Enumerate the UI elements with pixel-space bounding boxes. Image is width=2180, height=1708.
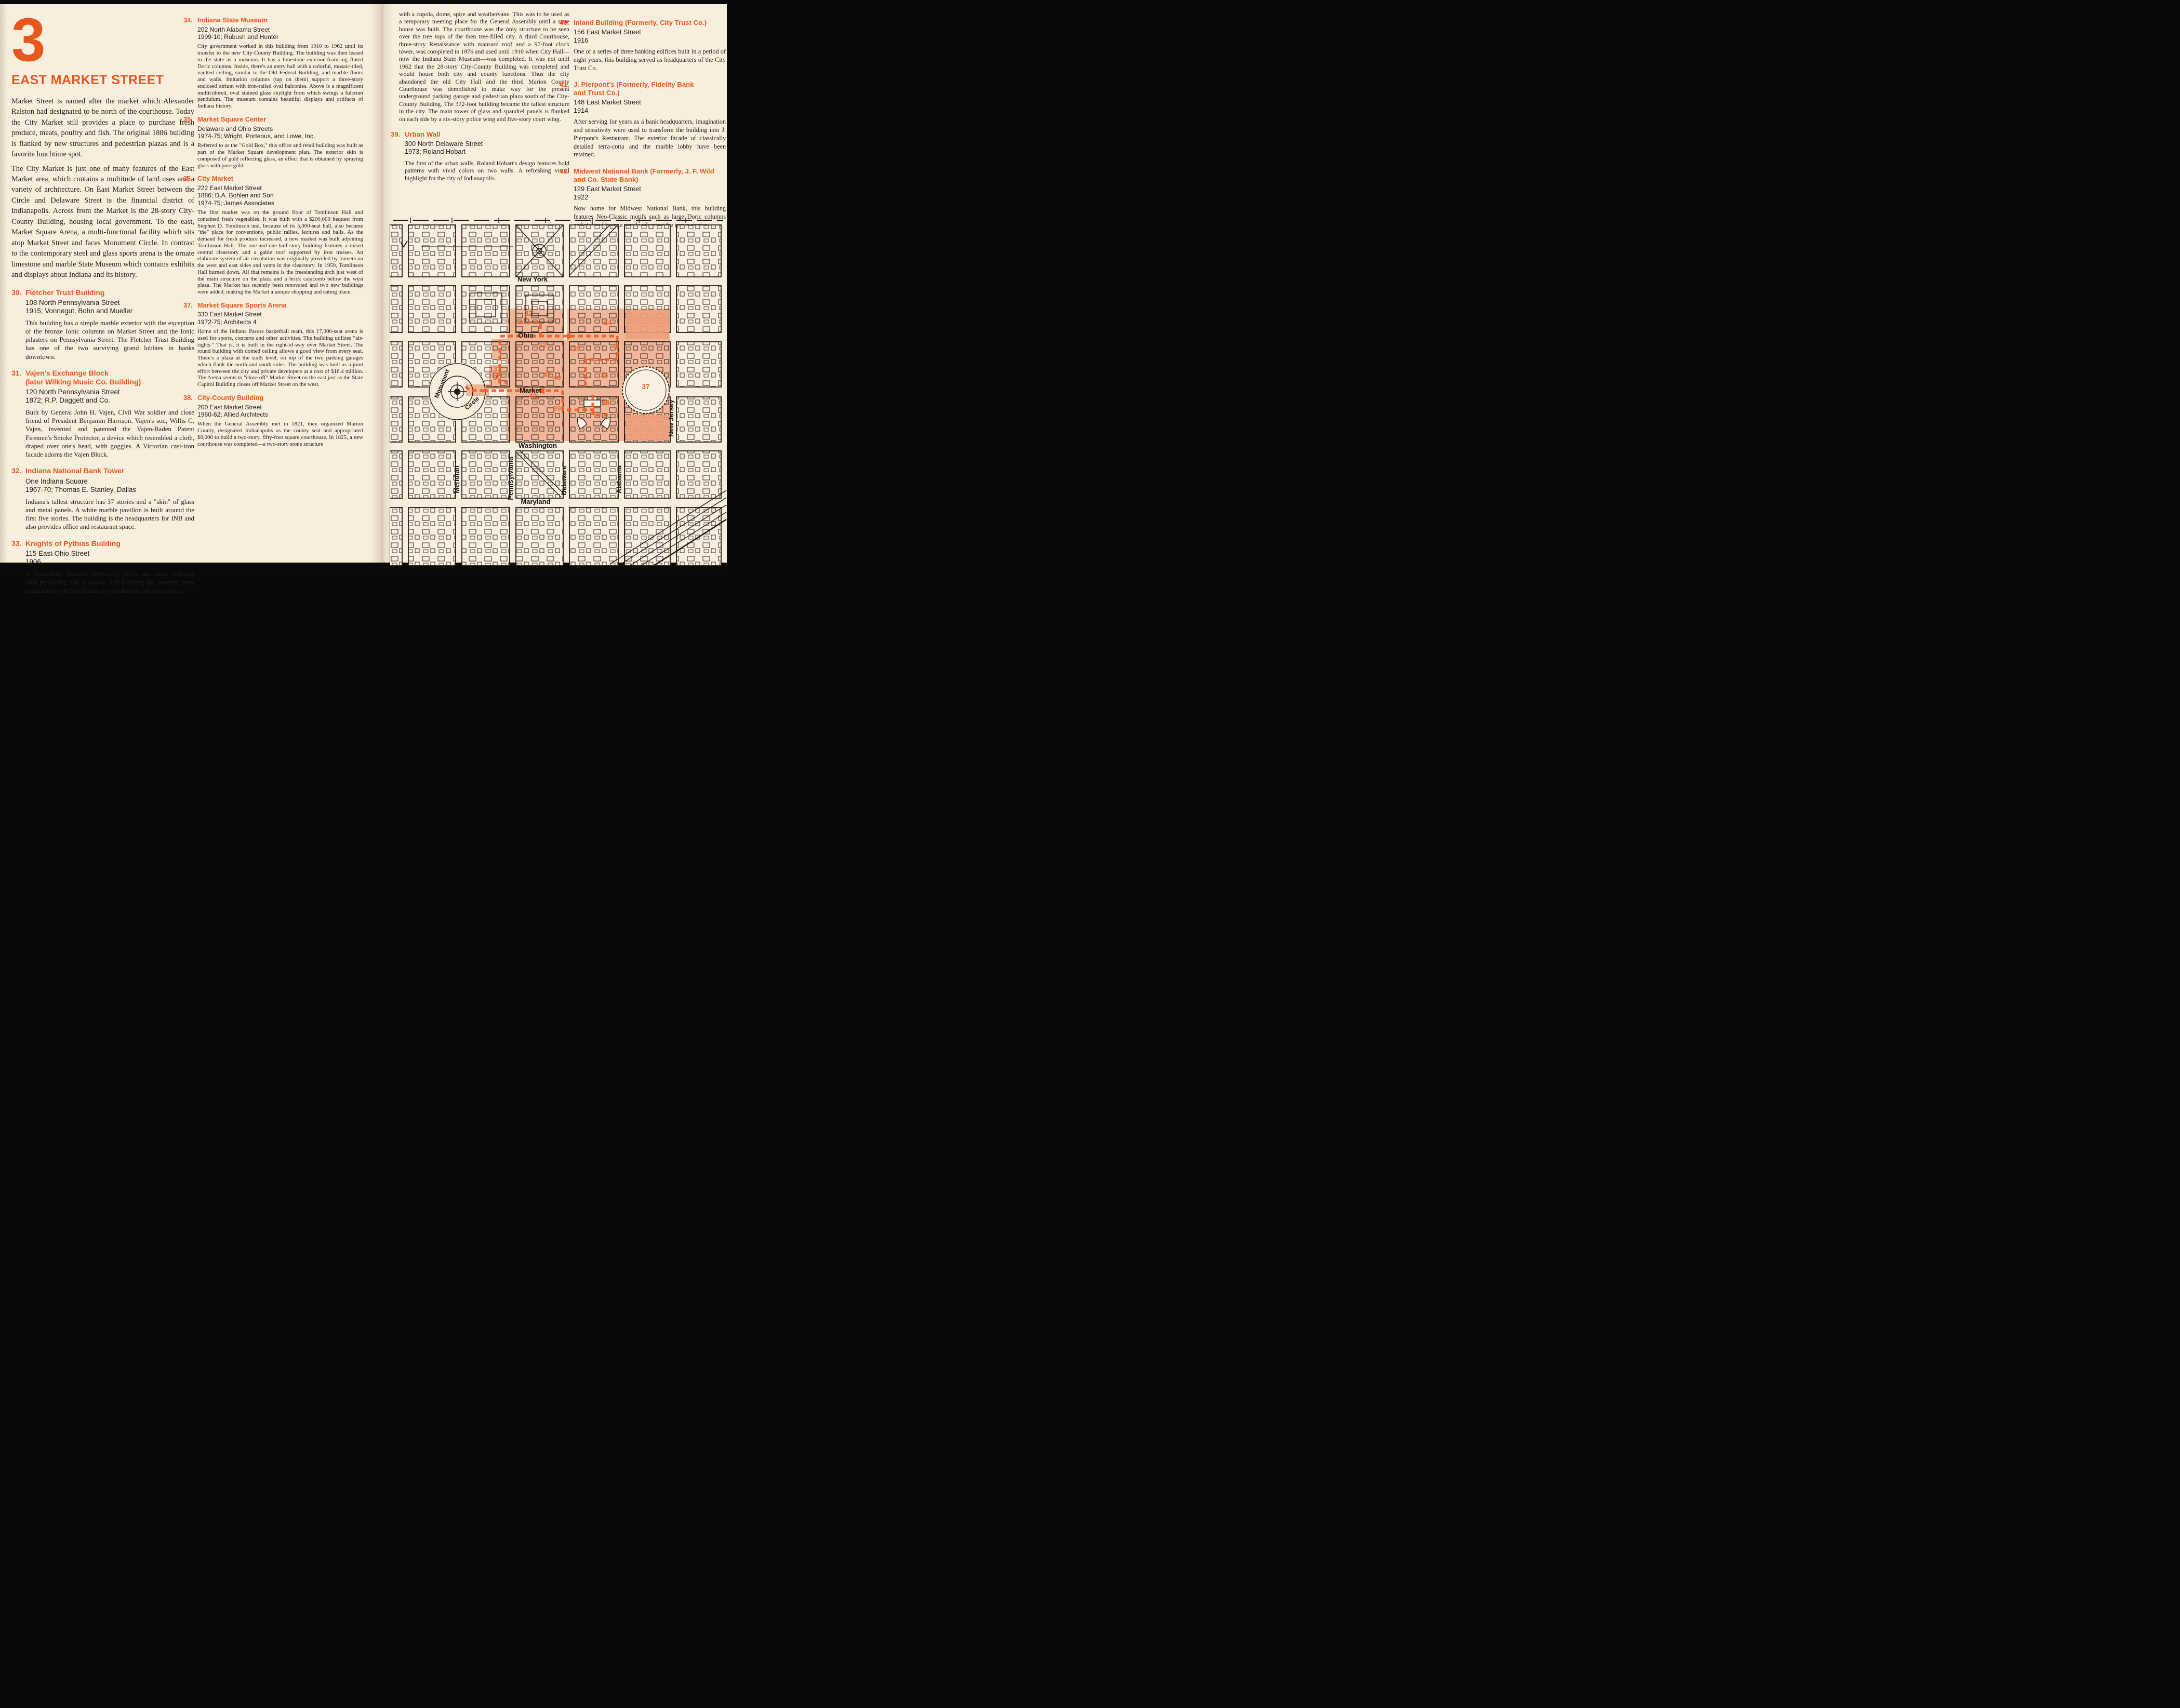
building-entry: 37. Market Square Sports Arena 330 East … xyxy=(183,301,363,388)
downtown-map: New YorkOhioMarketWashingtonMarylandMeri… xyxy=(390,217,727,566)
street-label-meridian: Meridian xyxy=(453,465,460,493)
entry-list: 34. Indiana State Museum 202 North Alaba… xyxy=(183,16,363,447)
entry-description: This building has a simple marble exteri… xyxy=(25,319,194,361)
street-label-washington: Washington xyxy=(519,442,557,449)
entry-number: 34. xyxy=(183,16,193,24)
entry-address: 300 North Delaware Street 1973; Roland H… xyxy=(405,140,569,156)
continuation-paragraph: with a cupola, dome, spire and weatherva… xyxy=(399,10,569,123)
entry-title: Knights of Pythias Building xyxy=(25,539,194,548)
entry-title: Fletcher Trust Building xyxy=(25,288,194,297)
entry-title: City Market xyxy=(197,175,363,183)
building-entry: 34. Indiana State Museum 202 North Alaba… xyxy=(183,16,363,110)
entry-title: J. Pierpont's (Formerly, Fidelity Bank a… xyxy=(574,81,726,97)
building-entry: 36. City Market 222 East Market Street 1… xyxy=(183,175,363,296)
entry-list: 40. Inland Building (Formerly, City Trus… xyxy=(560,19,726,229)
entry-title: Indiana State Museum xyxy=(197,16,363,24)
street-label-new-jersey: New Jersey xyxy=(667,399,675,436)
entry-description: Home of the Indiana Pacers basketball te… xyxy=(197,328,363,388)
map-marker-34: 34 xyxy=(604,319,612,327)
entry-description: Indiana's tallest structure has 37 stori… xyxy=(25,498,194,531)
left-column: 3 EAST MARKET STREET Market Street is na… xyxy=(11,14,194,595)
building-entry: 35. Market Square Center Delaware and Oh… xyxy=(183,115,363,169)
entry-description: One of a series of three banking edifice… xyxy=(574,48,726,72)
entry-title: Inland Building (Formerly, City Trust Co… xyxy=(574,19,726,27)
entry-title: Market Square Center xyxy=(197,115,363,124)
street-label-ohio: Ohio xyxy=(518,331,534,339)
chapter-title: EAST MARKET STREET xyxy=(11,73,194,88)
entry-address: Delaware and Ohio Streets 1974-75; Wrigh… xyxy=(197,125,363,140)
photo-edge-top xyxy=(0,0,727,4)
entry-number: 35. xyxy=(183,115,193,123)
entry-number: 42. xyxy=(560,167,569,175)
entry-number: 41. xyxy=(560,81,569,88)
street-label-delaware: Delaware xyxy=(560,465,568,495)
entry-address: 200 East Market Street 1960-62; Allied A… xyxy=(197,404,363,419)
entry-number: 39. xyxy=(391,130,400,138)
map-marker-33: 33 xyxy=(538,341,547,349)
entry-address: 222 East Market Street 1886; D.A. Bohlen… xyxy=(197,184,363,207)
entry-address: 115 East Ohio Street 1906 xyxy=(25,550,194,567)
street-label-new-york: New York xyxy=(517,275,548,283)
entry-number: 40. xyxy=(560,19,569,26)
entry-description: Built by General John H. Vajen, Civil Wa… xyxy=(25,408,194,459)
entry-description: A beautifully detailed three-story brick… xyxy=(25,570,194,595)
street-map-svg: New YorkOhioMarketWashingtonMarylandMeri… xyxy=(390,217,727,566)
entry-title: Urban Wall xyxy=(405,130,569,139)
entry-description: City government worked in this building … xyxy=(197,43,363,110)
entry-address: 108 North Pennsylvania Street 1915; Vonn… xyxy=(25,299,194,316)
chapter-number: 3 xyxy=(11,14,194,68)
entry-list: 30. Fletcher Trust Building 108 North Pe… xyxy=(11,288,194,595)
entry-number: 37. xyxy=(183,301,193,309)
map-marker-38: 38 xyxy=(602,399,610,407)
entry-number: 31. xyxy=(11,369,21,377)
entry-address: 156 East Market Street 1916 xyxy=(574,29,726,45)
building-entry: 33. Knights of Pythias Building 115 East… xyxy=(11,539,194,595)
entry-description: When the General Assembly met in 1821, t… xyxy=(197,421,363,447)
entry-number: 30. xyxy=(11,288,21,297)
entry-number: 32. xyxy=(11,466,21,475)
entry-description: Referred to as the "Gold Box," this offi… xyxy=(197,142,363,169)
entry-list: 39. Urban Wall 300 North Delaware Street… xyxy=(391,130,569,182)
right-column-1: with a cupola, dome, spire and weatherva… xyxy=(391,10,569,182)
entry-address: 148 East Market Street 1914 xyxy=(574,99,726,115)
building-entry: 32. Indiana National Bank Tower One Indi… xyxy=(11,466,194,531)
map-marker-41: 41 xyxy=(543,371,551,379)
intro-paragraph: The City Market is just one of many feat… xyxy=(11,164,194,281)
building-entry: 31. Vajen's Exchange Block (later Wilkin… xyxy=(11,369,194,459)
building-entry: 41. J. Pierpont's (Formerly, Fidelity Ba… xyxy=(560,81,726,159)
entry-address: 330 East Market Street 1972-75; Architec… xyxy=(197,311,363,326)
street-label-alabama: Alabama xyxy=(615,465,623,493)
street-label-pennsylvania: Pennsylvania xyxy=(507,457,514,500)
building-entry: 38. City-County Building 200 East Market… xyxy=(183,394,363,447)
entry-description: After serving for years as a bank headqu… xyxy=(574,118,726,159)
entry-address: One Indiana Square 1967-70; Thomas E. St… xyxy=(25,477,194,495)
map-marker-36: 36 xyxy=(600,371,608,379)
entry-title: Indiana National Bank Tower xyxy=(25,466,194,475)
entry-description: The first market was on the ground floor… xyxy=(197,209,363,296)
middle-column: 34. Indiana State Museum 202 North Alaba… xyxy=(183,10,363,447)
street-label-maryland: Maryland xyxy=(521,498,550,505)
entry-number: 38. xyxy=(183,394,193,402)
building-entry: 39. Urban Wall 300 North Delaware Street… xyxy=(391,130,569,182)
entry-number: 33. xyxy=(11,539,21,548)
map-marker-35: 35 xyxy=(572,345,580,353)
map-marker-32: 32 xyxy=(524,310,532,317)
entry-number: 36. xyxy=(183,175,193,182)
map-marker-31: 31 xyxy=(493,365,501,373)
map-marker-37: 37 xyxy=(642,383,649,391)
building-entry: 30. Fletcher Trust Building 108 North Pe… xyxy=(11,288,194,361)
entry-address: 120 North Pennsylvania Street 1872; R.P.… xyxy=(25,388,194,405)
building-entry: 40. Inland Building (Formerly, City Trus… xyxy=(560,19,726,72)
map-marker-39: 39 xyxy=(553,405,561,412)
entry-title: Midwest National Bank (Formerly, J. F. W… xyxy=(574,167,726,184)
booklet-spread: 3 EAST MARKET STREET Market Street is na… xyxy=(0,4,727,563)
entry-title: Market Square Sports Arena xyxy=(197,301,363,310)
entry-address: 202 North Alabama Street 1909-10; Rubush… xyxy=(197,26,363,41)
map-marker-30: 30 xyxy=(493,373,501,381)
guidebook-spread: { "page": { "section_number": "3", "sect… xyxy=(0,0,727,569)
entry-title: Vajen's Exchange Block (later Wilking Mu… xyxy=(25,369,194,386)
entry-address: 129 East Market Street 1922 xyxy=(574,185,726,202)
entry-title: City-County Building xyxy=(197,394,363,402)
map-marker-42: 42 xyxy=(529,392,537,400)
intro-paragraph: Market Street is named after the market … xyxy=(11,96,194,160)
entry-description: The first of the urban walls. Roland Hob… xyxy=(405,159,569,182)
map-marker-40: 40 xyxy=(553,374,561,382)
page-edge-shadow xyxy=(0,4,7,563)
right-column-2: 40. Inland Building (Formerly, City Trus… xyxy=(560,10,726,229)
